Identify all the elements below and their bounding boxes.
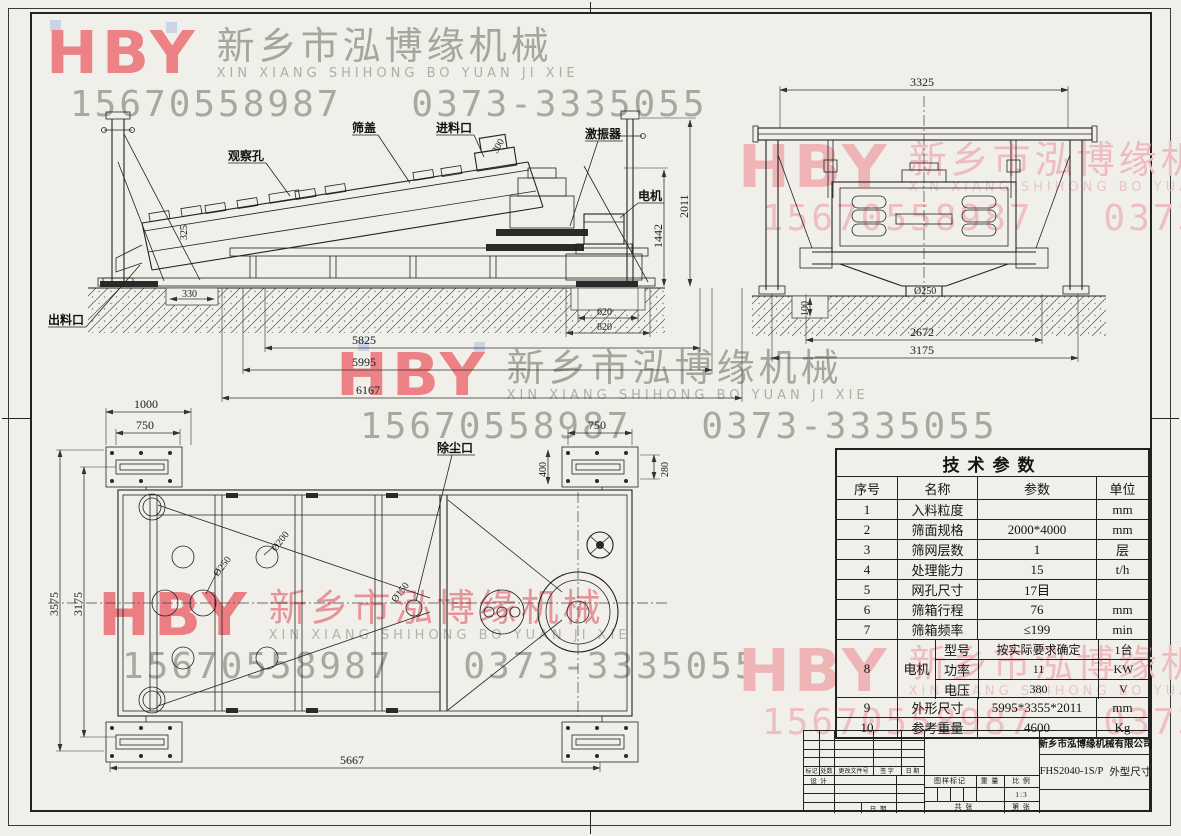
dim-3575: 3575 — [47, 592, 61, 616]
cell-unit: V — [1098, 680, 1148, 699]
cell-value: 1 — [977, 540, 1096, 559]
table-row: 4 处理能力 15 t/h — [837, 559, 1148, 579]
watermark-company-en: XIN XIANG SHIHONG BO YUAN JI XIE — [217, 66, 579, 81]
label-motor: 电机 — [638, 188, 662, 203]
motor-subrow: 功率 11 KW — [935, 659, 1148, 679]
cell-no: 4 — [837, 560, 897, 579]
cell-unit: mm — [1096, 600, 1148, 619]
hby-logo: HBY — [46, 25, 199, 80]
drawing-title: 外型尺寸 — [1109, 764, 1151, 779]
label-sign: 签 字 — [873, 766, 901, 775]
cell-no: 7 — [837, 620, 897, 639]
header-unit: 单位 — [1096, 477, 1148, 499]
dim-5667: 5667 — [340, 753, 364, 767]
drawing-number-cell: FHS2040-1S/P 外型尺寸 — [1040, 754, 1151, 789]
table-row: 6 筛箱行程 76 mm — [837, 599, 1148, 619]
cell-unit: mm — [1096, 698, 1148, 717]
cell-name: 外形尺寸 — [897, 698, 977, 717]
dim-330: 330 — [182, 289, 197, 300]
cell-no: 6 — [837, 600, 897, 619]
label-date: 日 期 — [901, 766, 924, 775]
label-change-file: 更改文件号 — [834, 766, 873, 775]
dim-5995: 5995 — [352, 355, 376, 369]
cell-name: 处理能力 — [897, 560, 977, 579]
cell-unit — [1096, 580, 1148, 599]
cell-name: 筛网层数 — [897, 540, 977, 559]
dim-outlet-250: Ø250 — [914, 286, 936, 297]
cell-no: 2 — [837, 520, 897, 539]
header-name: 名称 — [897, 477, 977, 499]
foot-plates — [106, 447, 638, 762]
label-discharge-outlet: 出料口 — [48, 312, 84, 327]
dim-750-left: 750 — [136, 418, 154, 432]
motor — [566, 166, 648, 282]
top-beam — [753, 126, 1097, 142]
cell-name: 筛箱频率 — [897, 620, 977, 639]
technical-parameters-table: 技术参数 序号 名称 参数 单位 1 入料粒度 mm 2 筛面规格 2000*4… — [835, 448, 1150, 739]
cell-no: 8 — [837, 640, 897, 697]
dim-2672: 2672 — [910, 325, 934, 339]
cell-value: 15 — [977, 560, 1096, 579]
dim-820: 820 — [597, 322, 612, 333]
cell-unit: mm — [1096, 500, 1148, 519]
label-observation-hole: 观察孔 — [228, 148, 264, 163]
label-screen-cover: 筛盖 — [352, 120, 376, 135]
table-row: 9 外形尺寸 5995*3355*2011 mm — [837, 697, 1148, 717]
cell-name: 电压 — [935, 680, 978, 699]
dim-1442: 1442 — [651, 224, 665, 248]
ground-hatch — [88, 288, 665, 333]
cell-unit: mm — [1096, 520, 1148, 539]
cell-no: 9 — [837, 698, 897, 717]
motor-subrow: 电压 380 V — [935, 679, 1148, 699]
title-block: 标记 处数 更改文件号 签 字 日 期 设 计 日 期 图样标记 重 量 比 例… — [803, 730, 1150, 812]
dim-3175: 3175 — [910, 343, 934, 357]
dim-280: 280 — [660, 462, 671, 477]
dim-hole-150: Ø150 — [389, 580, 411, 604]
table-row: 1 入料粒度 mm — [837, 499, 1148, 519]
suspension-rods — [824, 140, 1020, 198]
cell-value: 按实际要求确定 — [978, 640, 1098, 659]
motor-subrow: 型号 按实际要求确定 1台 — [935, 640, 1148, 659]
screen-box — [116, 133, 543, 272]
dim-3325: 3325 — [910, 75, 934, 89]
company-name: 新乡市泓博缘机械有限公司 — [1040, 731, 1151, 754]
discharge-chute — [116, 245, 142, 272]
dim-3175: 3175 — [71, 592, 85, 616]
cell-value: 11 — [978, 660, 1098, 679]
engineering-drawing-sheet: { "watermark": { "logo": "HBY", "company… — [0, 0, 1181, 836]
exciter-assembly — [486, 168, 588, 251]
dim-300: 300 — [490, 137, 507, 155]
cell-value: ≤199 — [977, 620, 1096, 639]
dim-100: 100 — [800, 301, 811, 316]
cell-value: 76 — [977, 600, 1096, 619]
dim-hole-200: Ø200 — [269, 529, 291, 553]
params-header-row: 序号 名称 参数 单位 — [837, 476, 1148, 499]
label-sheets-total: 共 张 — [924, 801, 1004, 813]
drawing-number: FHS2040-1S/P — [1040, 766, 1104, 777]
dim-750-right: 750 — [588, 418, 606, 432]
params-table-title: 技术参数 — [837, 450, 1148, 476]
label-feed-inlet: 进料口 — [436, 120, 472, 135]
label-weight: 重 量 — [976, 775, 1004, 787]
header-value: 参数 — [977, 477, 1096, 499]
front-view: 3325 — [745, 70, 1115, 365]
cell-no: 5 — [837, 580, 897, 599]
top-view: 除尘口 Ø250 Ø200 Ø150 1000 750 750 400 280 … — [40, 400, 760, 785]
cell-name: 型号 — [935, 640, 978, 659]
table-row: 5 网孔尺寸 17目 — [837, 579, 1148, 599]
center-mark-right — [1152, 418, 1179, 419]
cell-no: 1 — [837, 500, 897, 519]
watermark-company-cn: 新乡市泓博缘机械 — [217, 24, 579, 68]
cell-name: 筛箱行程 — [897, 600, 977, 619]
cell-unit: min — [1096, 620, 1148, 639]
label-exciter: 激振器 — [585, 126, 622, 141]
dim-400: 400 — [538, 462, 549, 477]
cell-unit: t/h — [1096, 560, 1148, 579]
center-mark-top — [590, 2, 591, 12]
cell-name: 网孔尺寸 — [897, 580, 977, 599]
cell-value: 5995*3355*2011 — [977, 698, 1096, 717]
motor-rows: 8 电机 型号 按实际要求确定 1台 功率 11 KW 电压 380 V — [837, 639, 1148, 697]
table-row: 3 筛网层数 1 层 — [837, 539, 1148, 559]
screen-holes — [152, 546, 422, 669]
center-mark-bottom — [590, 812, 591, 834]
cell-name: 筛面规格 — [897, 520, 977, 539]
cell-motor: 电机 — [897, 640, 935, 697]
dim-2011: 2011 — [677, 194, 691, 218]
center-mark-left — [2, 418, 30, 419]
cell-unit: KW — [1098, 660, 1148, 679]
table-row: 7 筛箱频率 ≤199 min — [837, 619, 1148, 639]
dim-620: 620 — [597, 307, 612, 318]
cell-value: 380 — [978, 680, 1098, 699]
cell-unit: 层 — [1096, 540, 1148, 559]
header-no: 序号 — [837, 477, 897, 499]
side-view: 观察孔 筛盖 进料口 激振器 电机 出料口 300 325 2011 1442 … — [35, 105, 760, 430]
label-dust-port: 除尘口 — [437, 440, 473, 455]
cell-unit: 1台 — [1098, 640, 1148, 659]
label-scale: 比 例 — [1004, 775, 1039, 787]
cell-value — [977, 500, 1096, 519]
cell-no: 3 — [837, 540, 897, 559]
table-row: 2 筛面规格 2000*4000 mm — [837, 519, 1148, 539]
label-sheet-no: 第 张 — [1004, 801, 1039, 813]
scale-value: 1:3 — [1004, 787, 1039, 801]
drive-assembly-plan — [480, 532, 618, 652]
dim-5825: 5825 — [352, 333, 376, 347]
label-drawing-mark: 图样标记 — [924, 775, 976, 787]
dim-6167: 6167 — [356, 383, 380, 397]
dim-1000: 1000 — [134, 397, 158, 411]
dim-325: 325 — [179, 225, 190, 240]
cell-value: 17目 — [977, 580, 1096, 599]
cell-name: 入料粒度 — [897, 500, 977, 519]
label-date-2: 日 期 — [861, 802, 896, 813]
cell-value: 2000*4000 — [977, 520, 1096, 539]
cell-name: 功率 — [935, 660, 978, 679]
label-design: 设 计 — [804, 775, 834, 784]
